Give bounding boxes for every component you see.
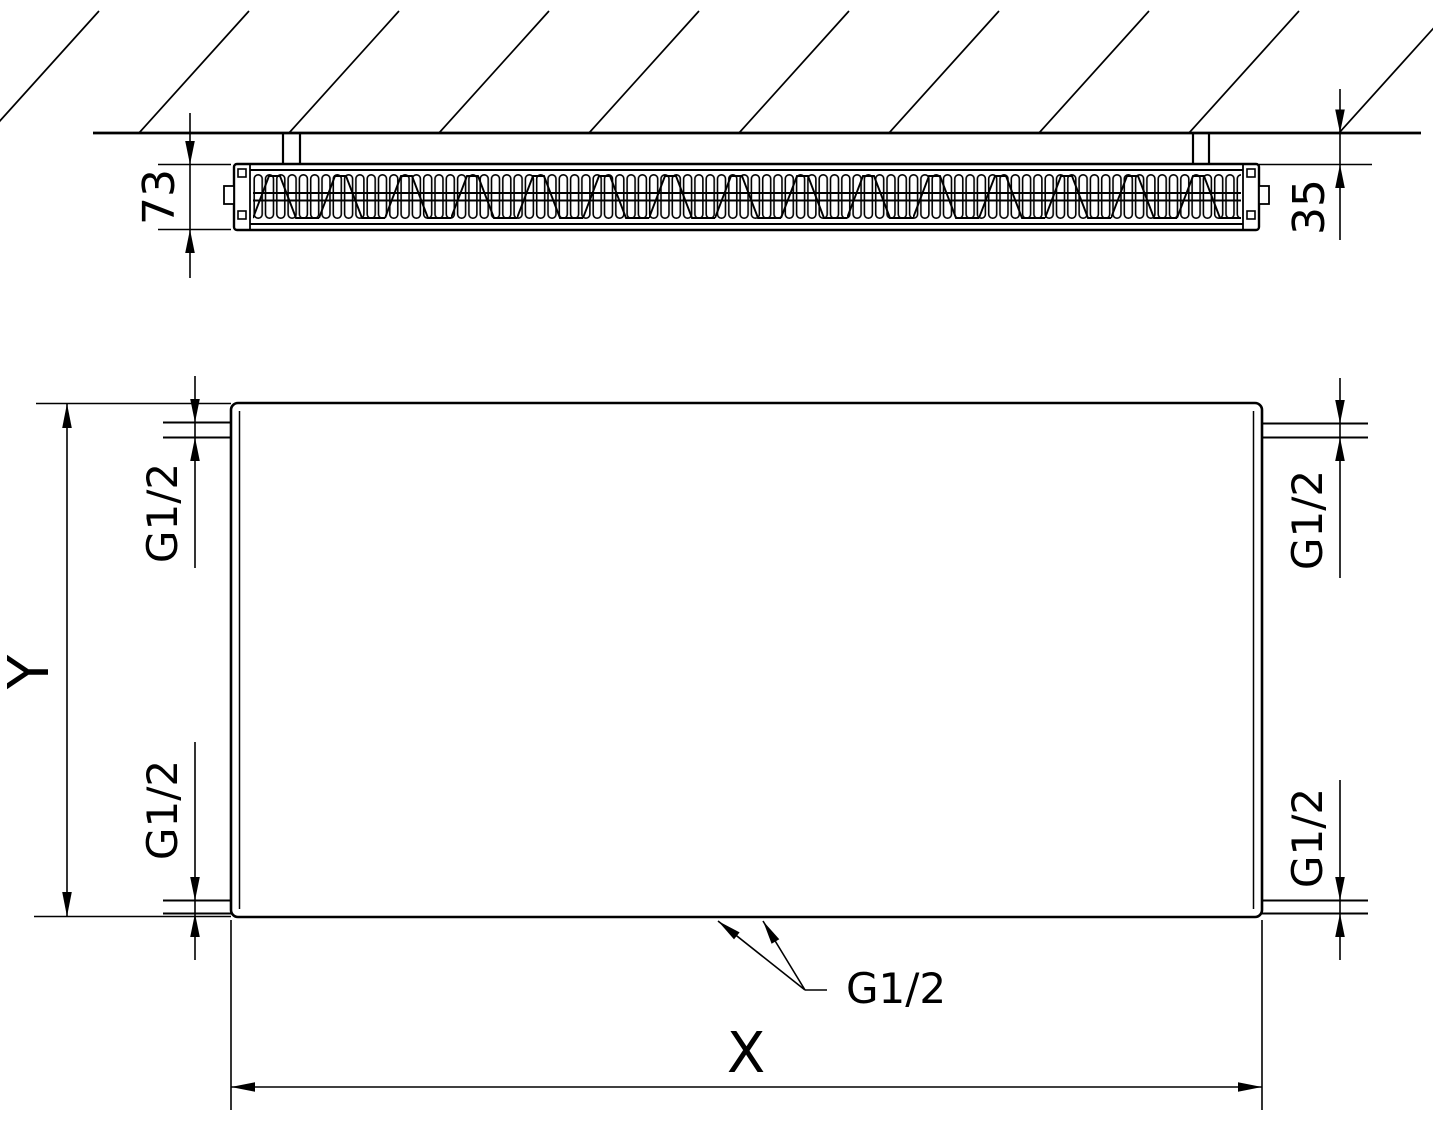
height-label: Y [0, 654, 62, 690]
wall-distance-label: 35 [1284, 179, 1335, 235]
radiator-top-view [224, 164, 1269, 230]
connection-stub-bottom-left [163, 901, 231, 914]
connection-stub-top-right [1262, 424, 1368, 438]
mounting-bracket-left [283, 134, 300, 163]
g12-label-bottom-center: G1/2 [846, 964, 946, 1013]
radiator-front-view [231, 403, 1262, 917]
leader-g12-bottom-center [718, 921, 827, 990]
dimension-g12-bottom-right [1335, 780, 1345, 960]
dimension-g12-bottom-left [190, 742, 200, 960]
dimension-g12-top-left [190, 376, 200, 568]
g12-label-bottom-right: G1/2 [1283, 788, 1332, 888]
dimension-height-y [34, 404, 231, 917]
radiator-technical-drawing: 73 35 G1/2 G1/2 [0, 0, 1433, 1125]
width-label: X [727, 1021, 765, 1086]
connection-stub-top-left [163, 423, 231, 438]
g12-label-top-right: G1/2 [1283, 470, 1332, 570]
mounting-bracket-right [1193, 134, 1209, 163]
g12-label-top-left: G1/2 [138, 463, 187, 563]
wall-hatching [0, 11, 1433, 133]
connection-stub-bottom-right [1262, 901, 1368, 914]
drawing-canvas: 73 35 G1/2 G1/2 [0, 0, 1433, 1125]
dimension-g12-top-right [1335, 378, 1345, 578]
g12-label-bottom-left: G1/2 [138, 760, 187, 860]
depth-dimension-label: 73 [134, 169, 185, 225]
convector-fins [253, 174, 1241, 219]
